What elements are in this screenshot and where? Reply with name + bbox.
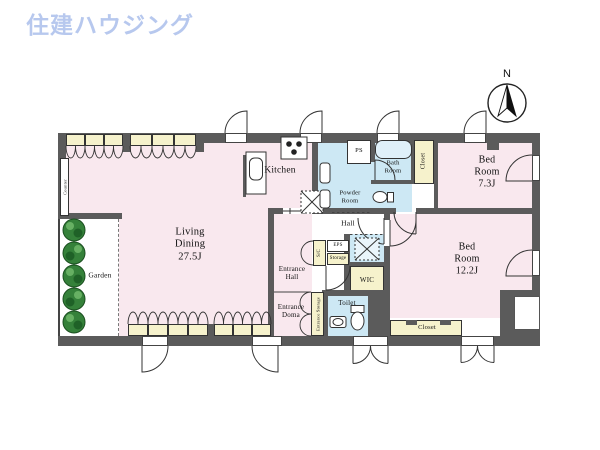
wall-bottom — [282, 336, 353, 346]
window-cell — [152, 134, 174, 146]
bedroom2-area-right — [500, 214, 532, 290]
wall-living-right — [312, 143, 318, 208]
exterior-door-arcs-top — [225, 111, 486, 133]
wall-kitchen-partition — [243, 155, 246, 197]
label-hall: Hall — [341, 220, 355, 229]
label-closet-south: Closet — [418, 324, 436, 332]
door-opening — [464, 133, 486, 143]
label-counter: Counter — [62, 179, 67, 195]
door-opening — [532, 250, 540, 276]
label-storage: Storage — [330, 256, 347, 262]
wall-right — [532, 181, 540, 250]
wall-bottom — [168, 336, 252, 346]
label-kitchen: Kitchen — [264, 165, 295, 176]
label-wic: WIC — [360, 276, 374, 284]
door-opening — [225, 133, 247, 143]
wall-toilet-right — [368, 296, 384, 336]
window-cell — [128, 324, 148, 336]
label-shoe-cabinet: S/C — [317, 249, 323, 257]
label-bedroom2: Bed Room 12.2J — [454, 241, 479, 276]
door-opening — [142, 336, 168, 346]
window-cell — [104, 134, 123, 146]
brand-logo: 住建ハウジング — [26, 12, 194, 39]
bedroom2-area — [390, 214, 500, 318]
label-living-dining: Living Dining 27.5J — [175, 226, 205, 263]
wall-closet-right — [434, 140, 438, 208]
door-opening — [252, 336, 282, 346]
floorplan-page: { "brand": { "logo_text": "住建ハウジング" }, "… — [0, 0, 600, 450]
door-opening — [300, 133, 322, 143]
door-opening — [461, 336, 494, 346]
exterior-door-arcs-bottom — [142, 346, 494, 372]
wall-bottom — [58, 336, 142, 346]
pillar — [196, 143, 204, 152]
wall-bath-bottom — [371, 180, 414, 184]
label-entrance-storage: Entrance Storage — [315, 297, 320, 331]
entrance-door-opening — [353, 336, 388, 346]
wall-top — [247, 133, 300, 143]
label-powder-room: Powder Room — [339, 189, 360, 204]
window-cell — [85, 134, 104, 146]
window-cell — [168, 324, 188, 336]
compass-icon — [488, 84, 526, 122]
window-cell — [174, 134, 196, 146]
exterior-notch — [514, 296, 540, 330]
wall-top — [486, 133, 540, 143]
label-toilet: Toilet — [338, 299, 355, 307]
label-entrance-hall: Entrance Hall — [279, 265, 305, 282]
compass-north-label: N — [503, 68, 511, 80]
wall-bath-left — [371, 140, 375, 162]
window-cell — [130, 134, 152, 146]
door-opening — [377, 133, 399, 143]
label-garden: Garden — [88, 272, 111, 281]
window-cell — [148, 324, 168, 336]
wall-right — [532, 143, 540, 155]
label-bath-room: Bath Room — [385, 159, 402, 174]
label-ps: PS — [355, 147, 363, 155]
window-cell — [188, 324, 208, 336]
wall-mid-horizontal — [416, 208, 532, 214]
door-opening — [532, 155, 540, 181]
window-cell — [214, 324, 233, 336]
label-closet-north: Closet — [420, 153, 427, 170]
window-cell — [66, 134, 85, 146]
window-cell — [252, 324, 271, 336]
window-cell — [233, 324, 252, 336]
label-eps: EPS — [333, 243, 342, 249]
wall-entrance-left — [268, 214, 274, 336]
pillar — [487, 143, 499, 150]
door-opening — [384, 220, 390, 246]
label-bedroom1: Bed Room 7.3J — [474, 154, 499, 189]
label-entrance-doma: Entrance Doma — [278, 303, 304, 320]
laundry-area — [350, 234, 384, 262]
wall-bottom — [388, 336, 461, 346]
wall-laundry-wic — [348, 262, 384, 266]
